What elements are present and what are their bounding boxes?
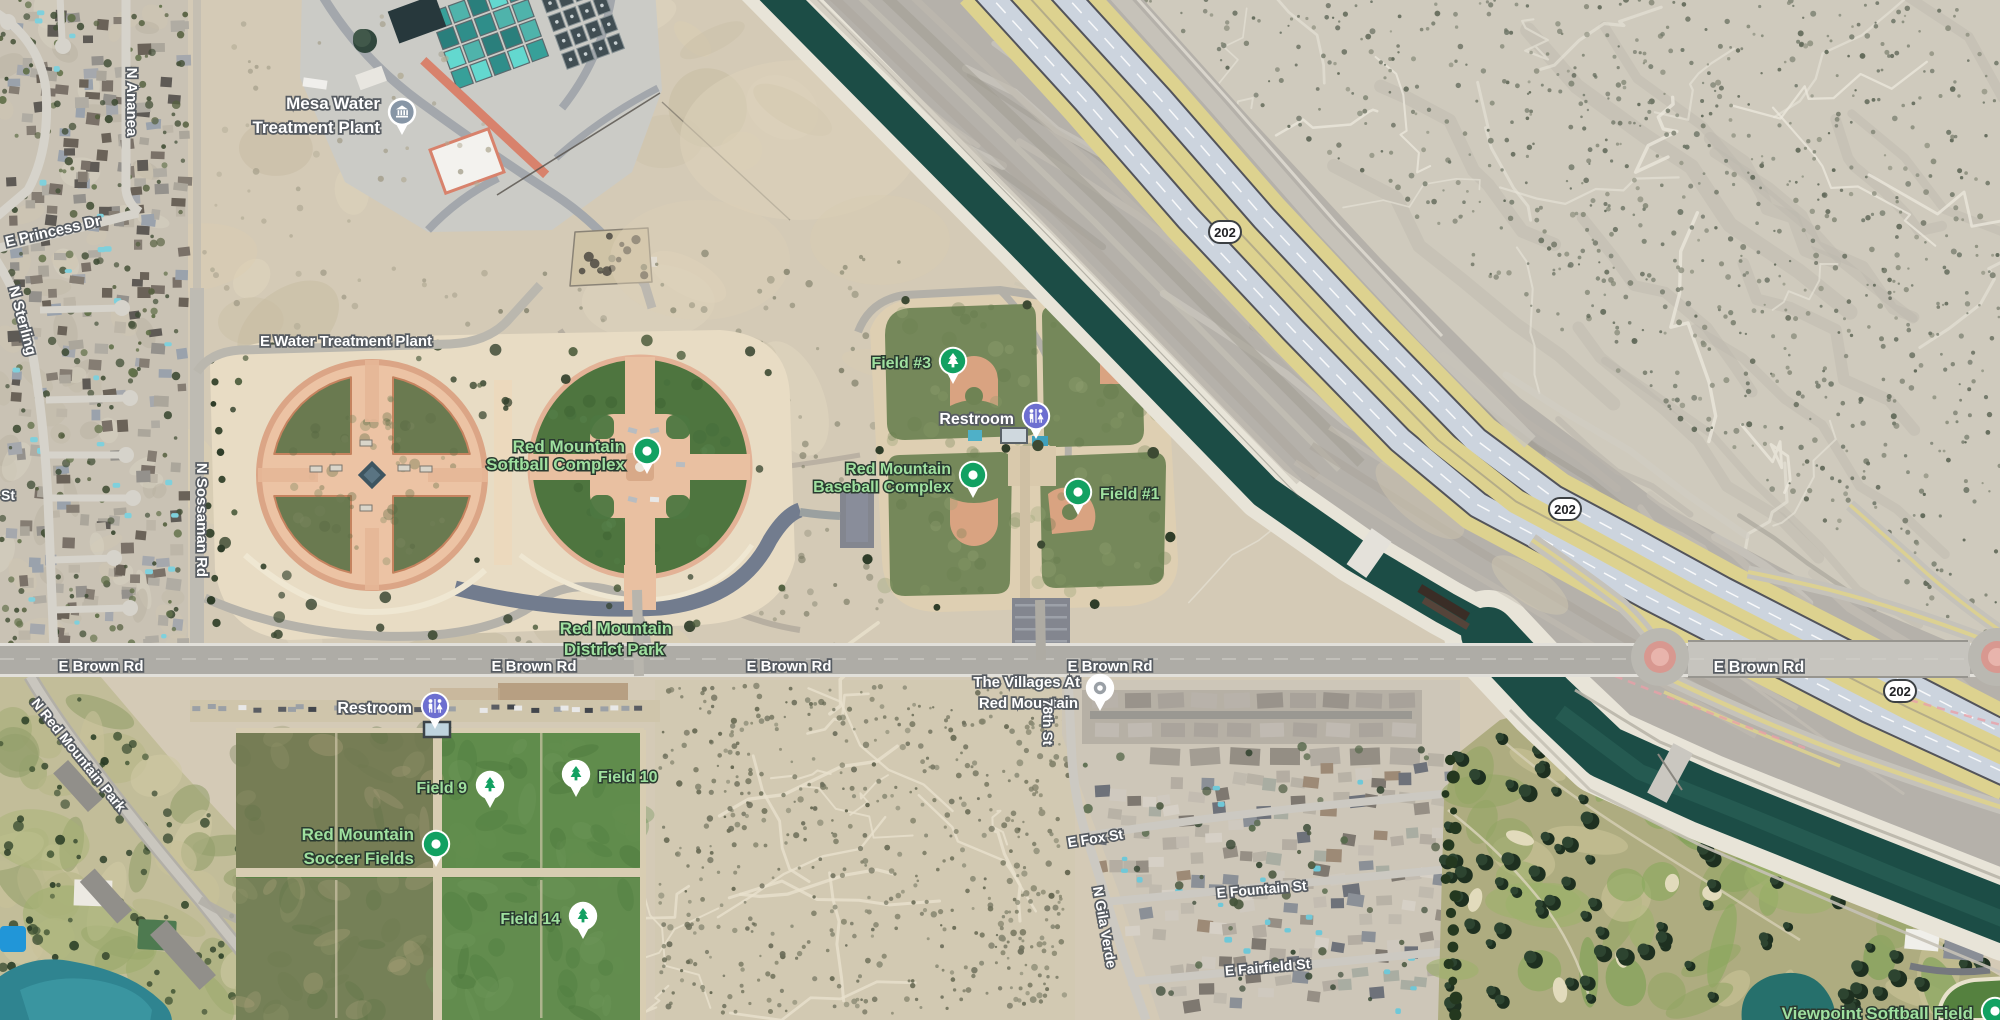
svg-text:Red Mountain: Red Mountain [560, 619, 672, 638]
svg-text:202: 202 [1214, 225, 1236, 240]
svg-text:E Brown Rd: E Brown Rd [492, 658, 577, 675]
svg-text:The Villages At: The Villages At [973, 674, 1080, 691]
svg-text:St: St [1, 487, 15, 503]
svg-text:E Brown Rd: E Brown Rd [1714, 659, 1805, 676]
svg-text:E Brown Rd: E Brown Rd [1068, 658, 1153, 675]
svg-text:202: 202 [1554, 502, 1576, 517]
svg-text:Red Mountain: Red Mountain [845, 461, 951, 478]
svg-text:Baseball Complex: Baseball Complex [813, 479, 951, 496]
svg-text:Viewpoint Softball Field: Viewpoint Softball Field [1782, 1004, 1973, 1020]
svg-text:Soccer Fields: Soccer Fields [303, 849, 414, 868]
svg-text:E Brown Rd: E Brown Rd [747, 658, 832, 675]
svg-text:N Ananea: N Ananea [123, 68, 140, 137]
svg-text:202: 202 [1889, 684, 1911, 699]
svg-text:Field 9: Field 9 [416, 780, 467, 797]
svg-text:Red Mountain: Red Mountain [979, 695, 1078, 712]
svg-text:E Brown Rd: E Brown Rd [59, 658, 144, 675]
svg-text:Field 14: Field 14 [500, 911, 560, 928]
svg-text:Red Mountain: Red Mountain [302, 825, 414, 844]
svg-text:Red Mountain: Red Mountain [513, 437, 625, 456]
svg-text:Mesa Water: Mesa Water [286, 94, 380, 113]
svg-text:Field #1: Field #1 [1100, 486, 1160, 503]
svg-text:Restroom: Restroom [939, 411, 1014, 428]
svg-text:E Water Treatment Plant: E Water Treatment Plant [260, 333, 432, 350]
svg-text:Restroom: Restroom [337, 700, 412, 717]
svg-text:N Sossaman Rd: N Sossaman Rd [193, 463, 210, 577]
svg-text:Treatment Plant: Treatment Plant [252, 118, 380, 137]
svg-text:Field #3: Field #3 [871, 355, 931, 372]
svg-text:District Park: District Park [564, 640, 665, 659]
svg-text:Softball Complex: Softball Complex [486, 455, 625, 474]
svg-text:78th St: 78th St [1040, 699, 1056, 746]
svg-text:Field 10: Field 10 [598, 769, 658, 786]
